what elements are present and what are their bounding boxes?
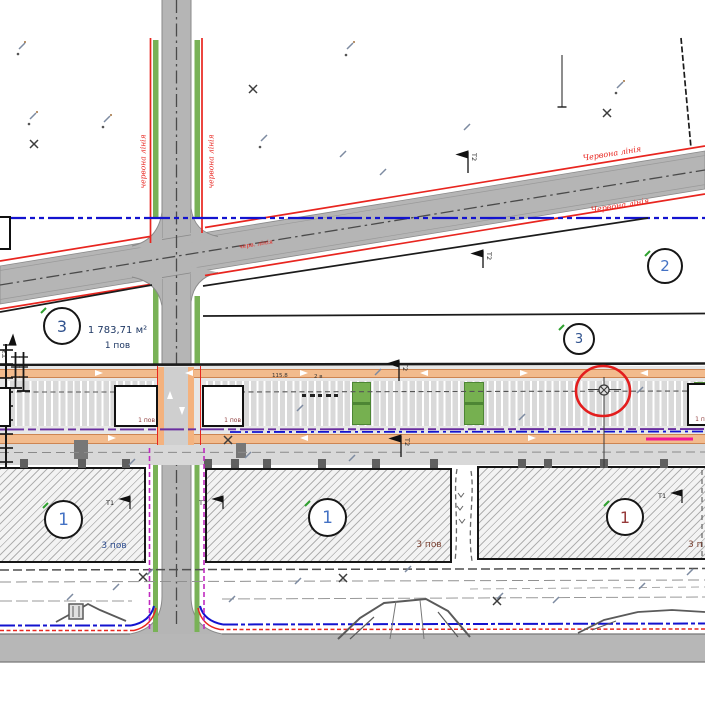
building-circle-1-left: 1 [44, 500, 83, 539]
dimension-note: 2 в [314, 374, 323, 380]
circle-green-ticks [41, 251, 650, 508]
site-plan-canvas: 1 пов 1 пов 1 пов [0, 0, 705, 705]
red-line-text-vertical-left: червона лінія [139, 127, 148, 197]
survey-scatter-marks [17, 41, 693, 605]
building-floors-label-left: 3 пов [92, 541, 136, 551]
t2-marker-label: Т2 [470, 153, 478, 161]
t2-marker-label: Т2 [403, 438, 411, 446]
pavilion-2: 1 пов [202, 385, 244, 427]
t1-marker-label: Т1 [199, 499, 207, 507]
pavilion-floors-label: 1 пов [138, 417, 155, 424]
pavilion-floors-label: 1 пов [224, 417, 241, 424]
t2-marker-label: Т2 [485, 252, 493, 260]
dashed-contours [455, 469, 702, 562]
building-floors-label-mid: 3 пов [407, 540, 451, 550]
strip-utility-lines [0, 391, 705, 630]
red-line-text-vertical-right: червона лінія [207, 127, 216, 197]
building-circle-1-mid: 1 [308, 498, 347, 537]
zone-circle-3-right: 3 [563, 323, 595, 355]
overlay-geometry-layer [0, 0, 705, 705]
t2-marker-label: Т2 [401, 363, 409, 371]
t1-marker-label: Т1 [658, 492, 666, 500]
pavilion-left-edge [0, 387, 11, 427]
t3-marker-label: Т3 [1, 350, 9, 358]
pavilion-1: 1 пов [114, 385, 158, 427]
zone-circle-2: 2 [647, 248, 683, 284]
dimension-label: 115.8 [272, 373, 288, 379]
parcel-floors-label: 1 пов [70, 341, 165, 351]
pavilion-floors-label: 1 пов [695, 416, 705, 423]
building-circle-1-right: 1 [606, 498, 644, 536]
parcel-area-label: 1 783,71 м² [70, 325, 165, 336]
pavilion-3: 1 пов [687, 383, 705, 426]
t1-marker-label: Т1 [106, 499, 114, 507]
building-floors-label-right: 3 п [688, 540, 705, 550]
